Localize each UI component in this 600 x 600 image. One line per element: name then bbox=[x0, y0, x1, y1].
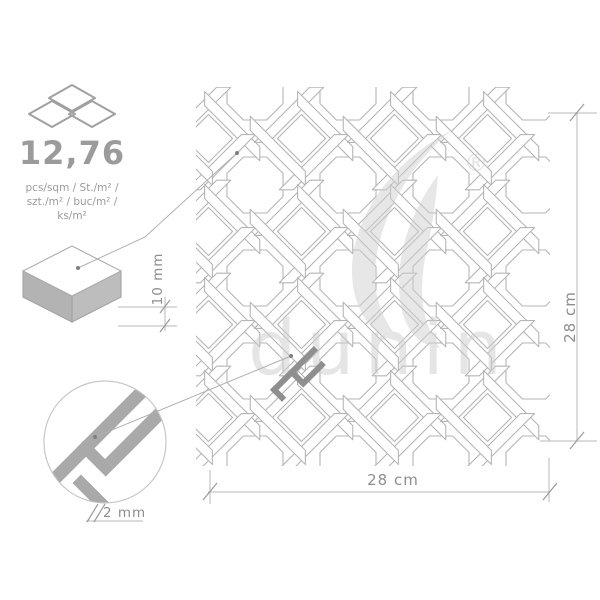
mosaic-tile bbox=[506, 157, 562, 213]
tile-3d-box bbox=[23, 246, 121, 322]
width-dimension-label: 28 cm bbox=[353, 471, 433, 489]
technical-drawing: dunin ® bbox=[0, 0, 600, 600]
mosaic-tile bbox=[506, 250, 562, 306]
detail-circle-outline bbox=[44, 381, 166, 503]
registered-trademark-symbol: ® bbox=[464, 149, 488, 177]
mosaic-tile bbox=[227, 250, 283, 306]
mosaic-tile bbox=[413, 64, 469, 120]
mosaic-tile bbox=[227, 64, 283, 120]
mosaic-tile bbox=[227, 436, 283, 492]
tiles-density-icon bbox=[29, 85, 115, 127]
thickness-dimension-label: 10 mm bbox=[150, 249, 166, 309]
mosaic-tile bbox=[506, 64, 562, 120]
spec-sheet: dunin ® bbox=[0, 0, 600, 600]
height-dimension-label: 28 cm bbox=[561, 277, 579, 357]
units-line-2: szt./m² / buc/m² / bbox=[0, 195, 144, 209]
pieces-per-sqm-value: 12,76 bbox=[2, 134, 142, 172]
mosaic-tile bbox=[506, 343, 562, 399]
mosaic-tile bbox=[320, 64, 376, 120]
mosaic-tile bbox=[506, 436, 562, 492]
mosaic-tile bbox=[320, 157, 376, 213]
joint-dimension-label: 2 mm bbox=[103, 505, 146, 521]
units-line-3: ks/m² bbox=[0, 209, 144, 223]
pieces-per-sqm-units: pcs/sqm / St./m² / szt./m² / buc/m² / ks… bbox=[0, 181, 144, 223]
units-line-1: pcs/sqm / St./m² / bbox=[0, 181, 144, 195]
mosaic-tile bbox=[227, 157, 283, 213]
